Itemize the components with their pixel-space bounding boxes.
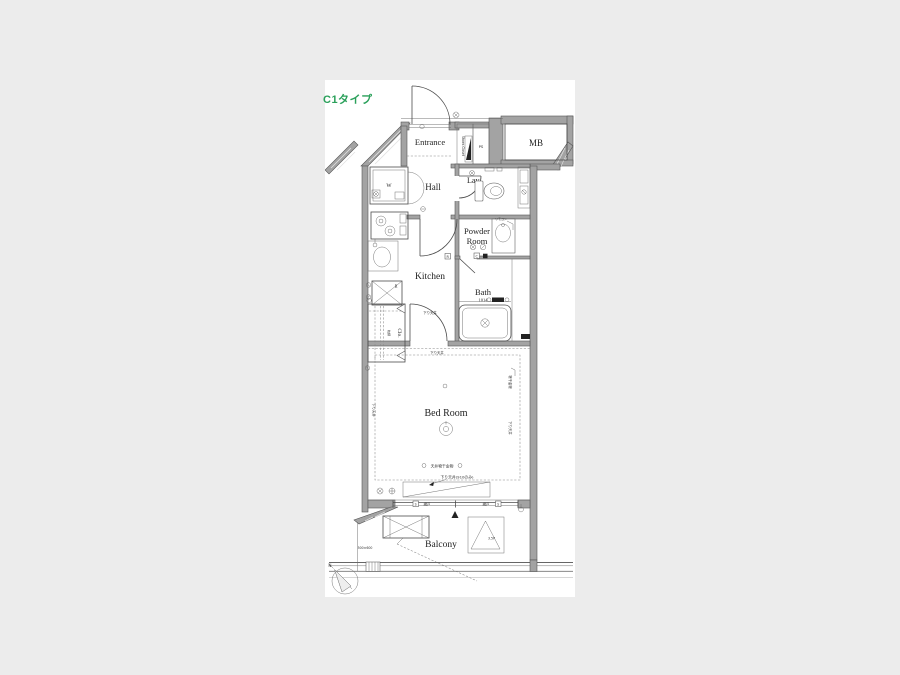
bathtub-icon [459, 305, 511, 341]
entrance-area: Entrance [401, 86, 503, 156]
toilet-icon [475, 181, 504, 201]
meter-box: MB [505, 124, 567, 160]
partition-board-icon: 3.5P [468, 517, 504, 553]
hall: Hall [421, 182, 442, 211]
screen-mark-right: S [497, 502, 499, 506]
lowered-ceiling-left: 下り天井 [372, 403, 377, 417]
shoes-closet-label: Shoes Closet [461, 136, 465, 157]
lowered-ceiling-bedroom-top: 下り天井 [430, 350, 444, 355]
screen-door-right: 網戸 [483, 502, 490, 507]
entrance-door-arc [412, 86, 450, 129]
partition-mark-label: 3.5P [488, 537, 495, 541]
bedroom-door-arc [410, 304, 447, 341]
outer-walls [325, 116, 573, 560]
compass-icon: N [328, 563, 358, 594]
screen-mark-left: S [415, 502, 417, 506]
balcony-label: Balcony [425, 540, 457, 550]
bedroom-label: Bed Room [424, 408, 467, 419]
lowered-ceiling-hatch-box [403, 482, 490, 497]
washer-label: W [386, 183, 392, 189]
ceiling-light-icon [440, 421, 453, 436]
pipe-space: PS [473, 124, 489, 164]
ps-label: PS [479, 144, 484, 149]
hall-label: Hall [425, 182, 441, 192]
lavatory: Lav. [459, 167, 530, 208]
shelf-label: 枕棚 [387, 330, 392, 336]
shoes-closet: Shoes Closet [457, 124, 473, 164]
sink-icon [368, 240, 398, 272]
bath-label: Bath [475, 287, 492, 297]
laundry-fitting-right: 物干金物 [508, 375, 513, 389]
washer-space: W [370, 167, 424, 204]
kitchen: Kitchen [368, 212, 457, 282]
floor-plan: Entrance Shoes Closet PS MB Hall [325, 80, 575, 597]
washbasin-icon [492, 219, 515, 253]
hatch-size-label: 500×600 [358, 546, 373, 550]
closet-label: Clo. [396, 328, 402, 338]
lowered-ceiling-kitchen-door: 下り天井 [423, 310, 437, 315]
screen-door-left: 網戸 [424, 502, 431, 507]
remote-label: リモコン [495, 217, 507, 221]
refrigerator-label: R [395, 284, 398, 289]
refrigerator-space: R [366, 281, 402, 305]
entrance-label: Entrance [415, 137, 445, 147]
intercom-icon [453, 112, 459, 118]
evacuation-hatch-icon [383, 516, 429, 538]
lowered-ceiling-910: 下り天井(910のみ) [441, 475, 475, 480]
bath: Bath 1014 [459, 259, 530, 341]
balcony-railing [329, 560, 573, 578]
powder-room-label-1: Powder [464, 226, 490, 236]
kitchen-door-arc [420, 219, 457, 256]
floorplan-image-panel: C1タイプ [325, 80, 575, 597]
closet: Clo. 枕棚 [365, 298, 405, 370]
mb-label: MB [529, 138, 543, 148]
page-background: C1タイプ [0, 0, 900, 675]
kitchen-label: Kitchen [415, 272, 445, 282]
stove-icon [371, 212, 408, 239]
ceiling-laundry-hardware: 天井物干金物 [431, 464, 454, 469]
bedroom: 下り天井 下り天井 Bed Room 下り天井 物干金物 下り天井 天井物干金物… [368, 304, 530, 497]
lowered-ceiling-right: 下り天井 [508, 421, 513, 435]
north-label: N [328, 563, 331, 568]
